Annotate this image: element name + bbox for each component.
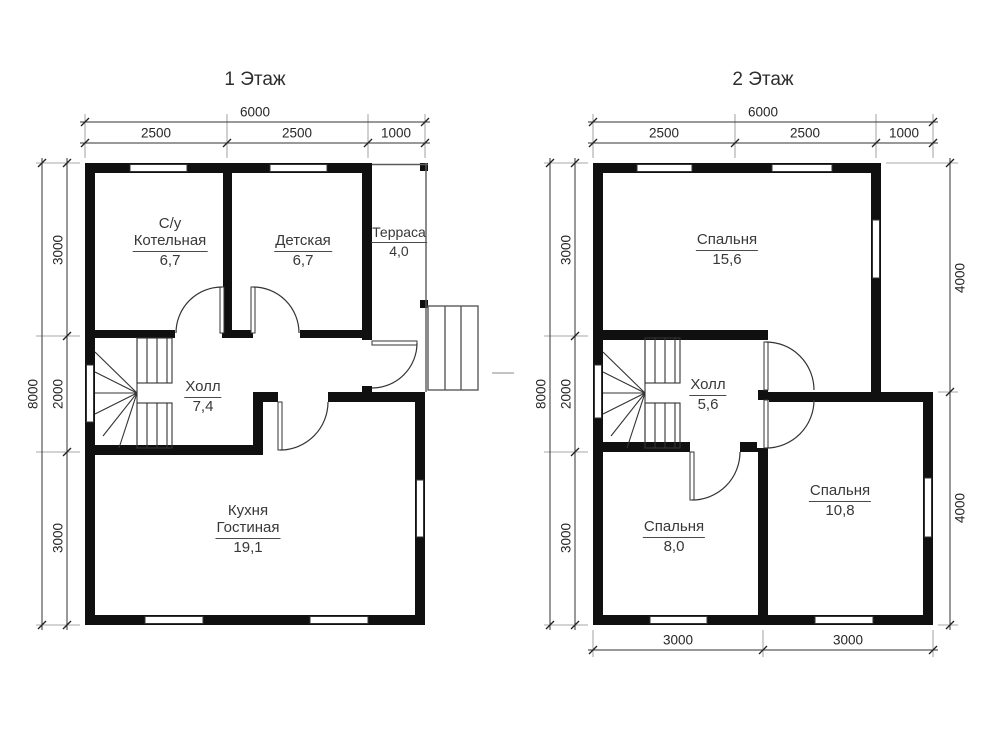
room-label-hall-2: Холл 5,6 [689, 377, 726, 414]
dim-f1-left-2: 2000 [51, 379, 66, 409]
room-label-nursery: Детская 6,7 [274, 233, 332, 270]
dim-f1-top-total: 6000 [240, 105, 270, 120]
dim-f2-right-1: 4000 [953, 263, 968, 293]
room-name: Котельная [133, 233, 208, 252]
floor2-dimension-ticks [546, 118, 954, 654]
floor2-plan [544, 114, 958, 657]
room-area: 15,6 [707, 251, 746, 269]
dim-f1-top-1: 2500 [141, 126, 171, 141]
dim-f2-left-2: 2000 [559, 379, 574, 409]
room-label-boiler: С/у Котельная 6,7 [133, 216, 208, 269]
room-name: Спальня [643, 519, 705, 538]
dim-f2-left-total: 8000 [534, 379, 549, 409]
room-label-hall-1: Холл 7,4 [184, 379, 221, 416]
room-area: 6,7 [155, 252, 186, 270]
room-name: Детская [274, 233, 332, 252]
dim-f1-top-2: 2500 [282, 126, 312, 141]
room-name: Холл [184, 379, 221, 398]
room-area: 7,4 [188, 398, 219, 416]
dim-f2-top-total: 6000 [748, 105, 778, 120]
floor2-extension-lines [544, 114, 958, 657]
room-area: 5,6 [693, 396, 724, 414]
room-label-bedroom-large: Спальня 15,6 [696, 232, 758, 269]
dim-f2-bottom-1: 3000 [663, 633, 693, 648]
floor2-dimension-lines [550, 122, 950, 650]
dim-f2-left-1: 3000 [559, 235, 574, 265]
room-label-kitchen: Кухня Гостиная 19,1 [216, 503, 281, 556]
floor2-doors [690, 342, 814, 500]
dim-f2-right-2: 4000 [953, 493, 968, 523]
dim-f1-left-total: 8000 [26, 379, 41, 409]
floor1-terrace-outline [372, 163, 514, 392]
room-area: 4,0 [384, 243, 413, 260]
dim-f2-top-1: 2500 [649, 126, 679, 141]
dim-f1-left-3: 3000 [51, 523, 66, 553]
room-area: 10,8 [820, 502, 859, 520]
door-bedroom-small [690, 452, 740, 500]
room-name: Гостиная [216, 520, 281, 539]
room-name: Спальня [809, 483, 871, 502]
floor2-stairs [603, 338, 680, 448]
dim-f2-bottom-2: 3000 [833, 633, 863, 648]
room-label-bedroom-small: Спальня 8,0 [643, 519, 705, 556]
terrace-post-mid [420, 300, 428, 308]
door-kitchen [278, 402, 328, 450]
room-area: 19,1 [228, 539, 267, 557]
dim-f1-left-1: 3000 [51, 235, 66, 265]
room-name: Кухня [227, 503, 269, 520]
floor1-doors [176, 287, 417, 450]
room-name: Терраса [371, 225, 427, 243]
room-name: Холл [689, 377, 726, 396]
floor1-title: 1 Этаж [224, 69, 285, 91]
dim-f2-left-3: 3000 [559, 523, 574, 553]
floor2-title: 2 Этаж [732, 69, 793, 91]
room-area: 6,7 [288, 252, 319, 270]
door-bedroom-large [764, 342, 814, 390]
room-name: С/у [158, 216, 183, 233]
dim-f2-top-3: 1000 [889, 126, 919, 141]
dim-f2-top-2: 2500 [790, 126, 820, 141]
door-boiler [176, 287, 224, 333]
door-entrance-terrace [372, 341, 417, 388]
room-label-terrace: Терраса 4,0 [371, 225, 427, 259]
floor1-stairs [95, 338, 172, 448]
porch-steps [428, 306, 478, 390]
room-area: 8,0 [659, 538, 690, 556]
door-nursery [251, 287, 299, 333]
door-bedroom-medium [764, 400, 814, 448]
dim-f1-top-3: 1000 [381, 126, 411, 141]
room-label-bedroom-medium: Спальня 10,8 [809, 483, 871, 520]
room-name: Спальня [696, 232, 758, 251]
floorplan-page: 1 Этаж 2 Этаж С/у Котельная 6,7 Детская … [0, 0, 1000, 750]
